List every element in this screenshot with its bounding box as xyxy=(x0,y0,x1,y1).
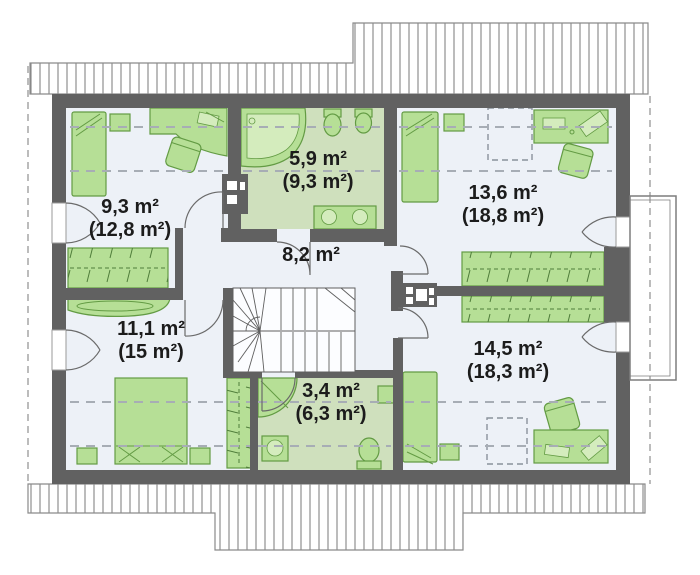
area-gross: (12,8 m²) xyxy=(89,219,171,242)
floor-plan-drawing xyxy=(0,0,700,575)
nightstand xyxy=(110,114,130,131)
roof-overhang-bottom xyxy=(28,484,645,550)
toilet xyxy=(359,438,379,462)
area-net: 13,6 m² xyxy=(462,182,544,205)
floor-plan: 9,3 m² (12,8 m²) 5,9 m² (9,3 m²) 13,6 m²… xyxy=(0,0,700,575)
roof-overhang-top xyxy=(30,23,648,94)
room-label-bedroom-top-right: 13,6 m² (18,8 m²) xyxy=(462,182,544,228)
area-gross: (18,3 m²) xyxy=(467,361,549,384)
balcony-door-top xyxy=(616,217,630,247)
window-left-bottom xyxy=(52,330,66,370)
nightstand xyxy=(444,114,464,131)
cabinet xyxy=(378,386,394,403)
area-gross: (6,3 m²) xyxy=(295,403,366,426)
room-label-hall: 8,2 m² xyxy=(282,244,340,267)
bed xyxy=(403,372,437,462)
nightstand xyxy=(190,448,210,464)
balcony-door-bottom xyxy=(616,322,630,352)
area-net: 5,9 m² xyxy=(282,148,353,171)
room-label-bathroom-top: 5,9 m² (9,3 m²) xyxy=(282,148,353,194)
area-net: 8,2 m² xyxy=(282,244,340,267)
double-bed xyxy=(115,378,187,464)
room-label-bedroom-top-left: 9,3 m² (12,8 m²) xyxy=(89,196,171,242)
area-gross: (15 m²) xyxy=(117,341,185,364)
area-gross: (18,8 m²) xyxy=(462,205,544,228)
area-net: 3,4 m² xyxy=(295,380,366,403)
area-net: 14,5 m² xyxy=(467,338,549,361)
bed xyxy=(72,112,106,196)
bed xyxy=(402,112,438,202)
area-gross: (9,3 m²) xyxy=(282,171,353,194)
window-left-top xyxy=(52,203,66,243)
room-label-bedroom-bottom-right: 14,5 m² (18,3 m²) xyxy=(467,338,549,384)
chimney-flue-left xyxy=(222,174,248,214)
room-label-bedroom-bottom-left: 11,1 m² (15 m²) xyxy=(117,318,185,364)
area-net: 11,1 m² xyxy=(117,318,185,341)
balcony xyxy=(630,196,676,380)
staircase xyxy=(233,288,355,372)
nightstand xyxy=(77,448,97,464)
area-net: 9,3 m² xyxy=(89,196,171,219)
room-label-bathroom-bottom: 3,4 m² (6,3 m²) xyxy=(295,380,366,426)
